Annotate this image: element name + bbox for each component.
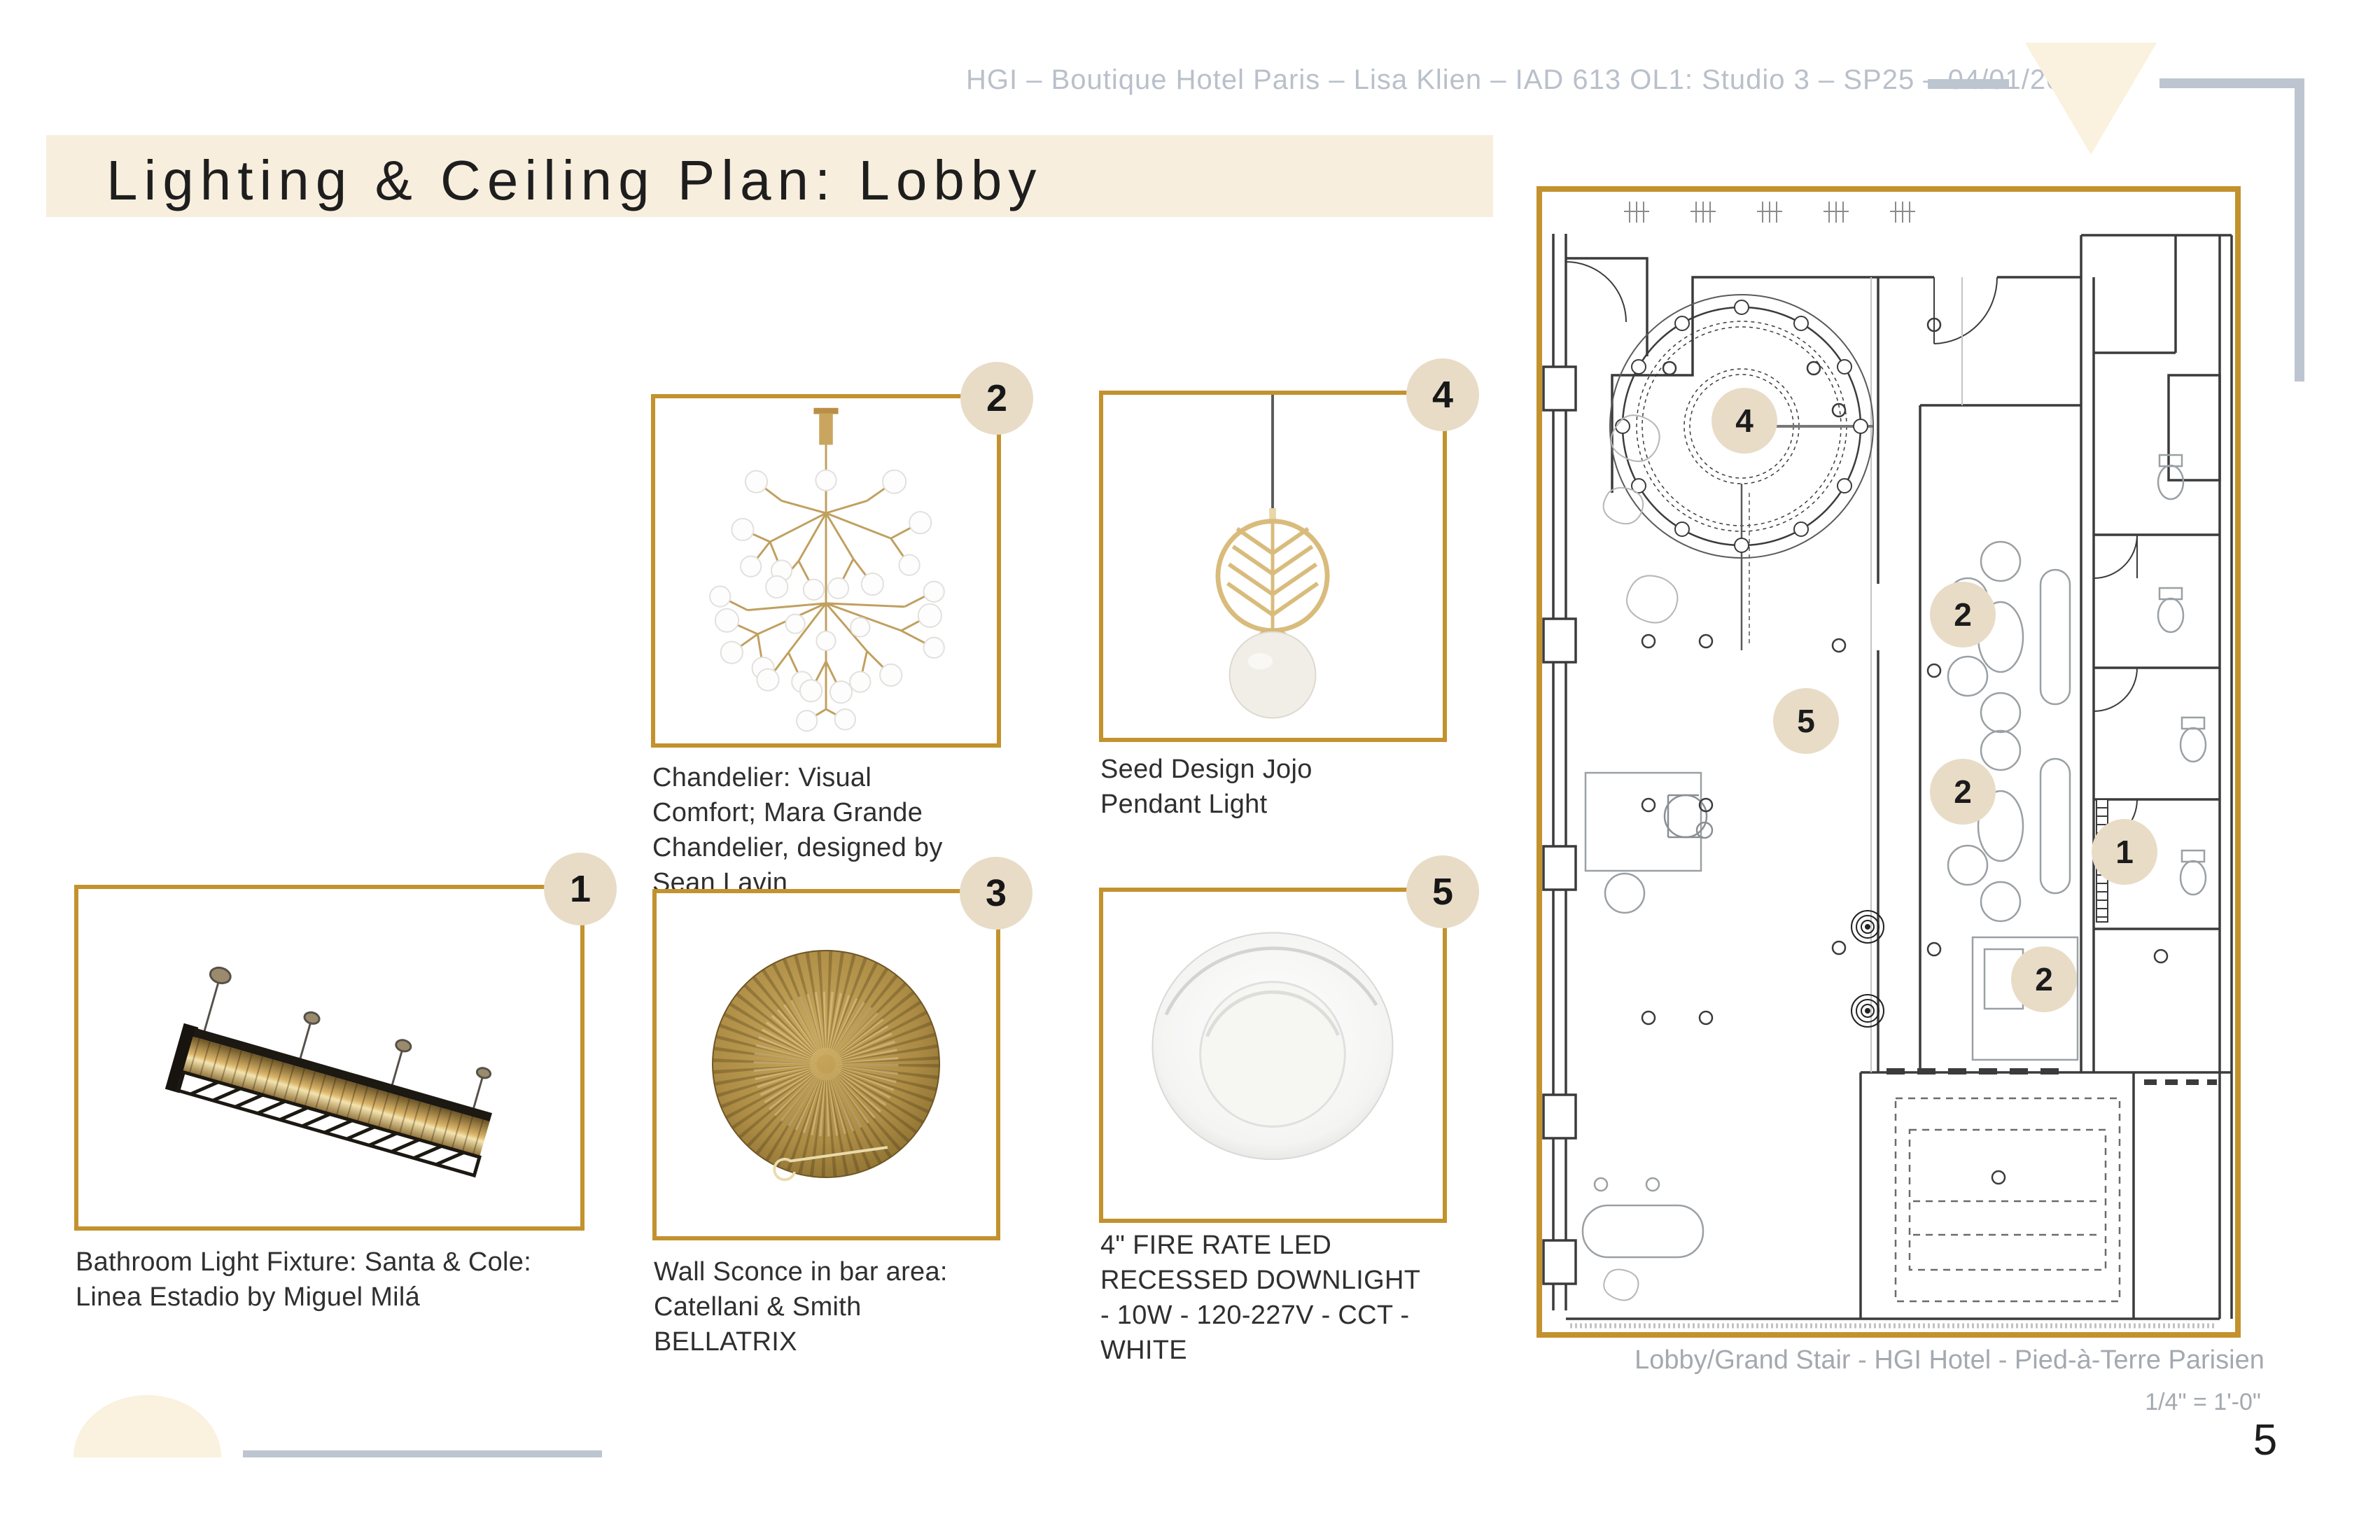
badge-number: 4 bbox=[1432, 373, 1453, 416]
fixture-caption-chandelier: Chandelier: Visual Comfort; Mara Grande … bbox=[652, 760, 981, 901]
fixture-caption-sconce: Wall Sconce in bar area: Catellani & Smi… bbox=[654, 1254, 976, 1359]
plan-badge: 1 bbox=[2092, 819, 2157, 885]
fixture-badge: 5 bbox=[1406, 855, 1479, 928]
plan-badge-number: 4 bbox=[1735, 402, 1753, 439]
plan-badge-number: 2 bbox=[1954, 773, 1972, 810]
fixture-caption-downlight: 4" FIRE RATE LED RECESSED DOWNLIGHT - 10… bbox=[1100, 1228, 1436, 1368]
fixture-caption-pendant: Seed Design Jojo Pendant Light bbox=[1100, 752, 1408, 822]
downlight-image bbox=[1103, 892, 1443, 1219]
floor-plan-drawing: 4 2 5 2 1 2 bbox=[1542, 192, 2235, 1332]
badge-number: 2 bbox=[986, 377, 1007, 420]
plan-badge-number: 2 bbox=[1954, 596, 1972, 633]
fixture-box-pendant: 4 bbox=[1099, 391, 1447, 742]
page-title: Lighting & Ceiling Plan: Lobby bbox=[106, 148, 1042, 213]
corner-line-vertical bbox=[2295, 78, 2304, 381]
triangle-decoration bbox=[2025, 43, 2157, 155]
page-number: 5 bbox=[2237, 1415, 2293, 1465]
header-project-line: HGI – Boutique Hotel Paris – Lisa Klien … bbox=[966, 64, 1904, 96]
sconce-image bbox=[657, 893, 996, 1236]
plan-badge: 2 bbox=[1930, 759, 1996, 825]
plan-badge-number: 1 bbox=[2115, 834, 2134, 870]
plan-badge-number: 5 bbox=[1797, 703, 1815, 739]
fixture-box-downlight: 5 bbox=[1099, 888, 1447, 1223]
plan-caption: Lobby/Grand Stair - HGI Hotel - Pied-à-T… bbox=[1631, 1345, 2268, 1375]
plan-badge: 4 bbox=[1711, 388, 1777, 454]
plan-badge: 2 bbox=[2011, 946, 2077, 1012]
dome-decoration bbox=[73, 1395, 221, 1457]
fixture-badge: 2 bbox=[960, 362, 1033, 435]
header-dash-line bbox=[1928, 79, 2009, 89]
fixture-caption-bathroom-linear: Bathroom Light Fixture: Santa & Cole: Li… bbox=[76, 1245, 566, 1315]
bathroom-fixture-image bbox=[78, 889, 580, 1226]
fixture-box-sconce: 3 bbox=[652, 889, 1000, 1240]
plan-badge: 5 bbox=[1773, 688, 1839, 754]
plan-badge-number: 2 bbox=[2035, 961, 2053, 997]
fixture-box-chandelier: 2 bbox=[651, 394, 1001, 748]
badge-number: 5 bbox=[1432, 870, 1453, 913]
chandelier-image bbox=[655, 398, 997, 743]
badge-number: 1 bbox=[570, 867, 591, 911]
fixture-badge: 4 bbox=[1406, 358, 1479, 431]
bottom-line-decoration bbox=[243, 1450, 602, 1457]
floor-plan: 4 2 5 2 1 2 bbox=[1536, 186, 2241, 1338]
corner-line-horizontal bbox=[2159, 78, 2302, 88]
fixture-box-bathroom-linear: 1 bbox=[74, 885, 584, 1231]
badge-number: 3 bbox=[986, 871, 1007, 915]
plan-badge: 2 bbox=[1930, 582, 1996, 647]
plan-scale: 1/4" = 1'-0" bbox=[2030, 1389, 2261, 1416]
fixture-badge: 3 bbox=[960, 857, 1032, 930]
pendant-image bbox=[1103, 395, 1443, 738]
fixture-badge: 1 bbox=[544, 853, 617, 925]
presentation-page: HGI – Boutique Hotel Paris – Lisa Klien … bbox=[0, 0, 2380, 1540]
